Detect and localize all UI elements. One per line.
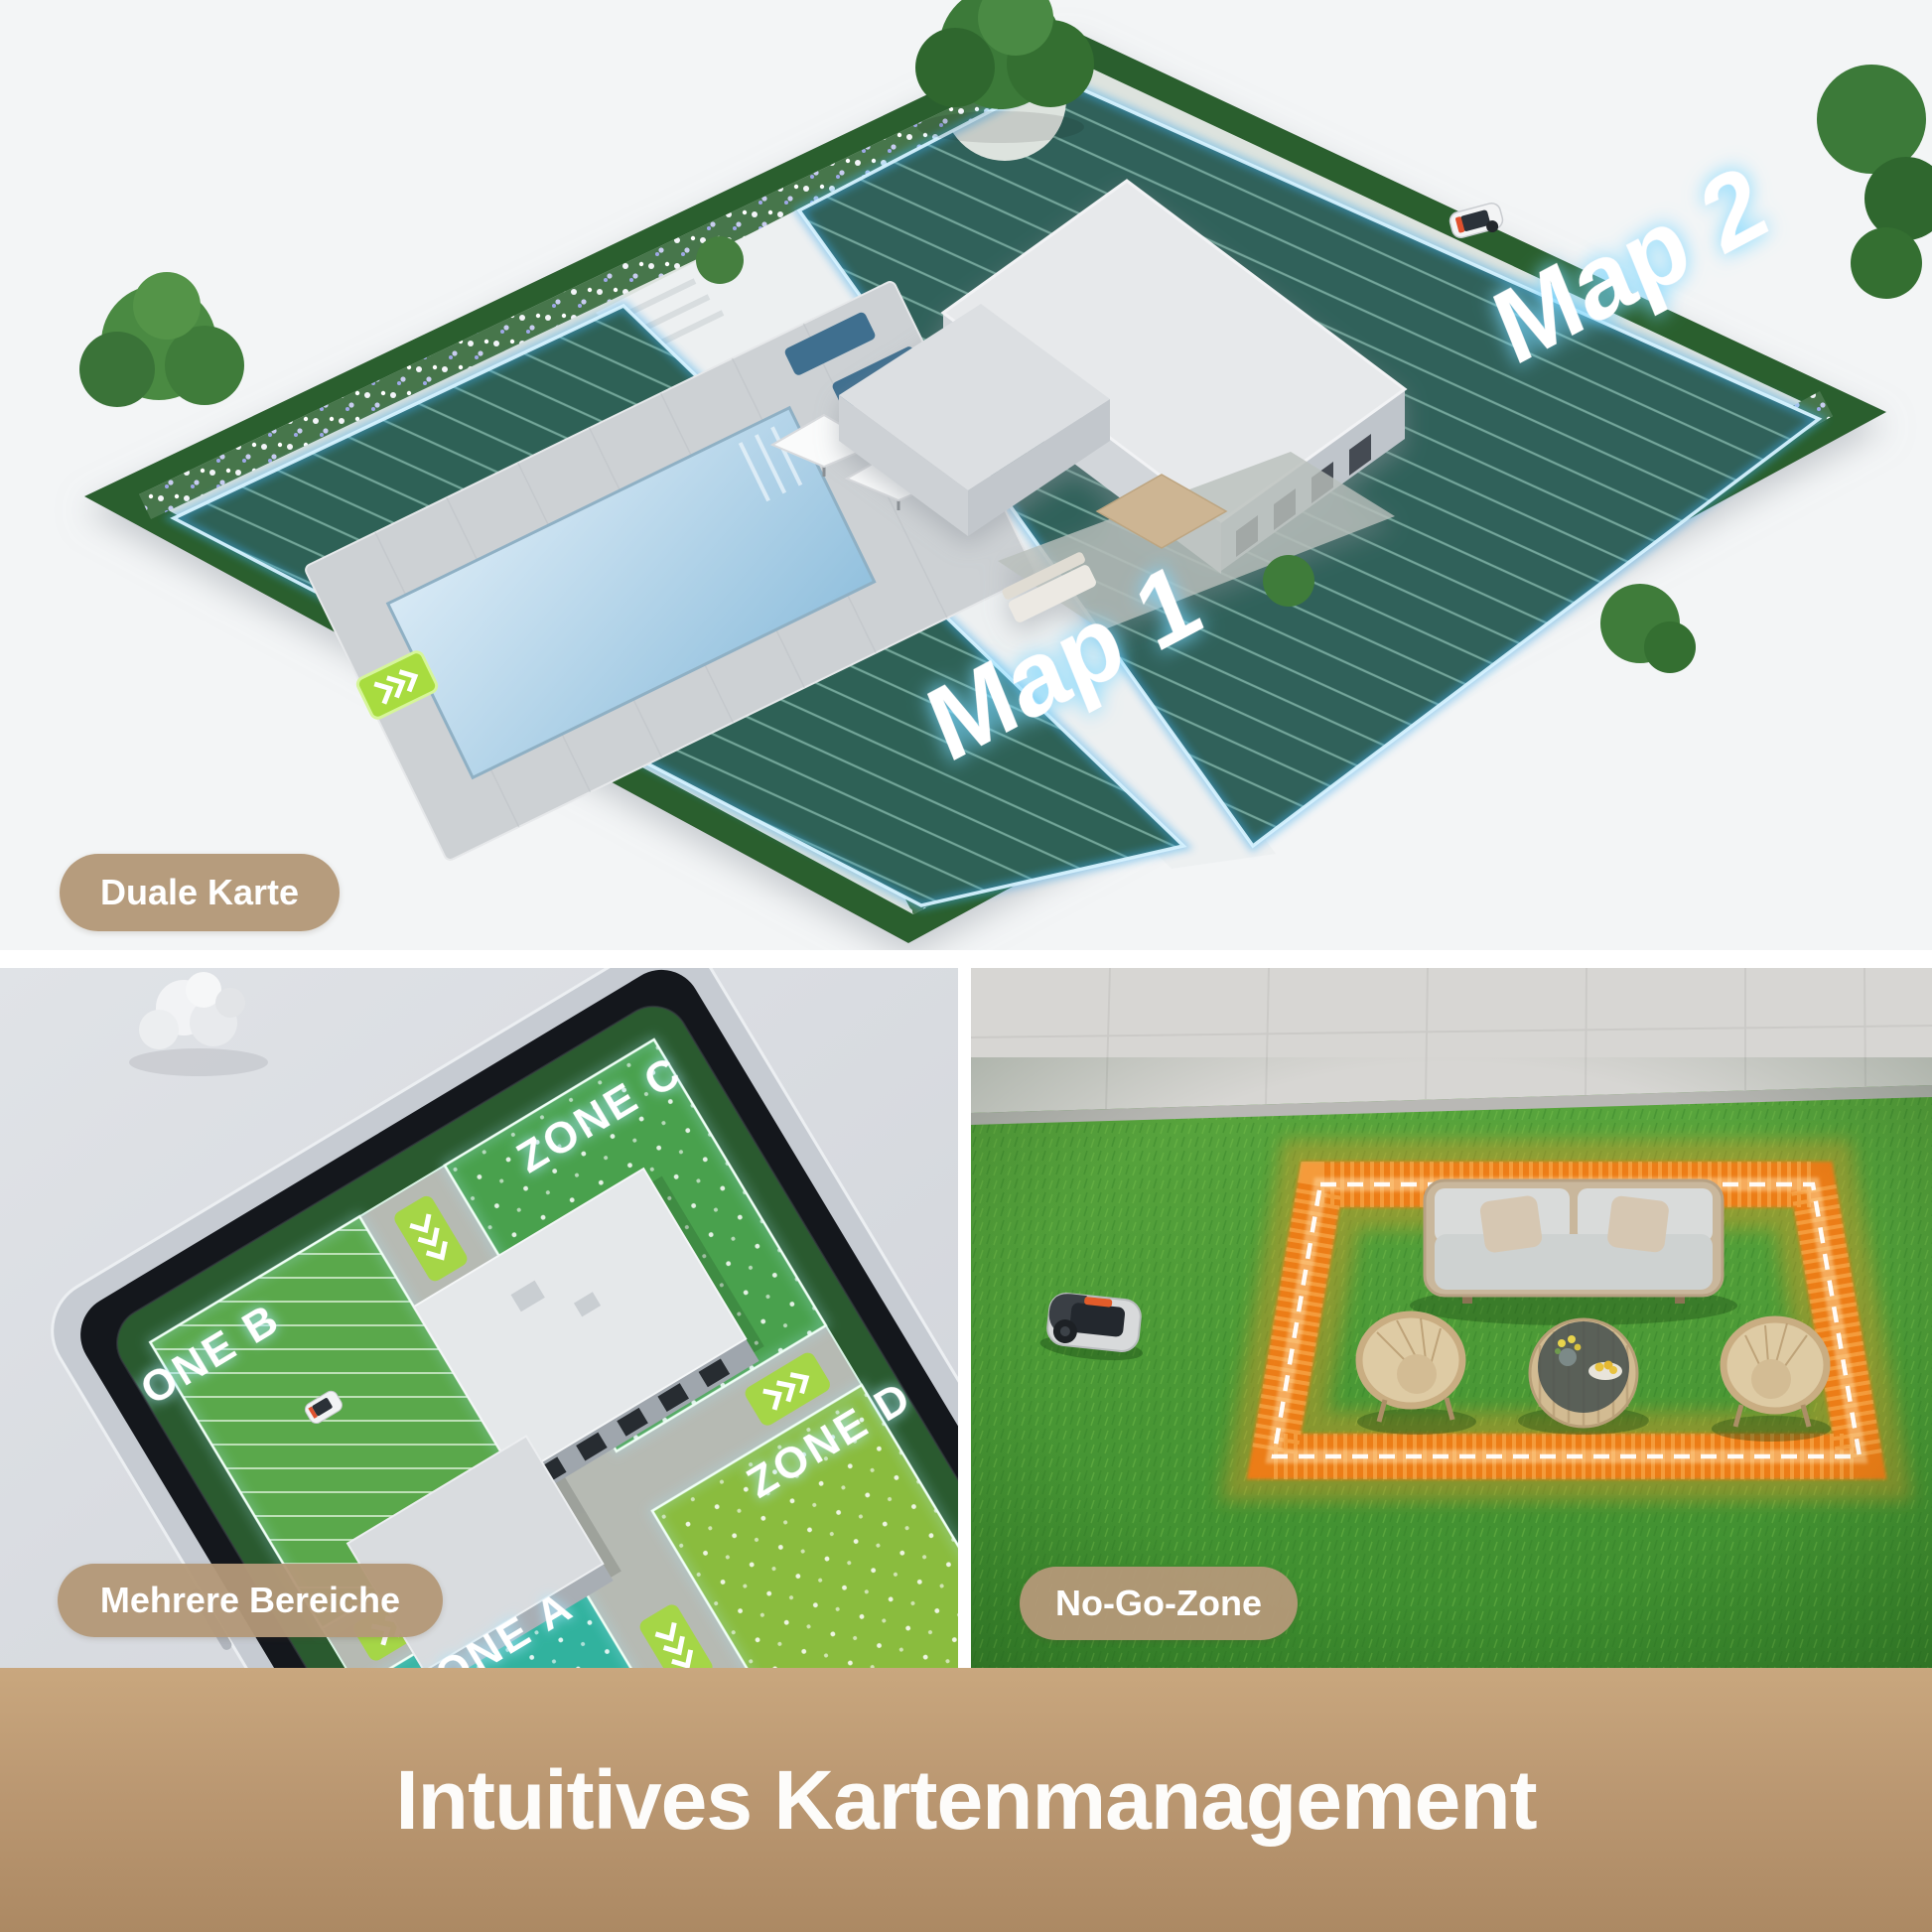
bush bbox=[1263, 555, 1314, 607]
bush bbox=[696, 236, 744, 284]
no-go-zone-scene bbox=[971, 968, 1932, 1668]
title-banner: Intuitives Kartenmanagement bbox=[0, 1668, 1932, 1932]
no-go-illustration bbox=[971, 968, 1932, 1668]
badge-no-go-zone: No-Go-Zone bbox=[1020, 1567, 1298, 1640]
product-infographic: Map 1 Map 2 bbox=[0, 0, 1932, 1932]
badge-mehrere-bereiche: Mehrere Bereiche bbox=[58, 1564, 443, 1637]
banner-title: Intuitives Kartenmanagement bbox=[395, 1752, 1536, 1849]
dual-map-scene: Map 1 Map 2 bbox=[0, 0, 1932, 950]
badge-mehrere-bereiche-label: Mehrere Bereiche bbox=[100, 1580, 400, 1621]
badge-duale-karte: Duale Karte bbox=[60, 854, 340, 931]
dual-map-illustration: Map 1 Map 2 bbox=[0, 0, 1932, 950]
badge-duale-karte-label: Duale Karte bbox=[100, 872, 299, 913]
badge-no-go-zone-label: No-Go-Zone bbox=[1055, 1583, 1262, 1624]
